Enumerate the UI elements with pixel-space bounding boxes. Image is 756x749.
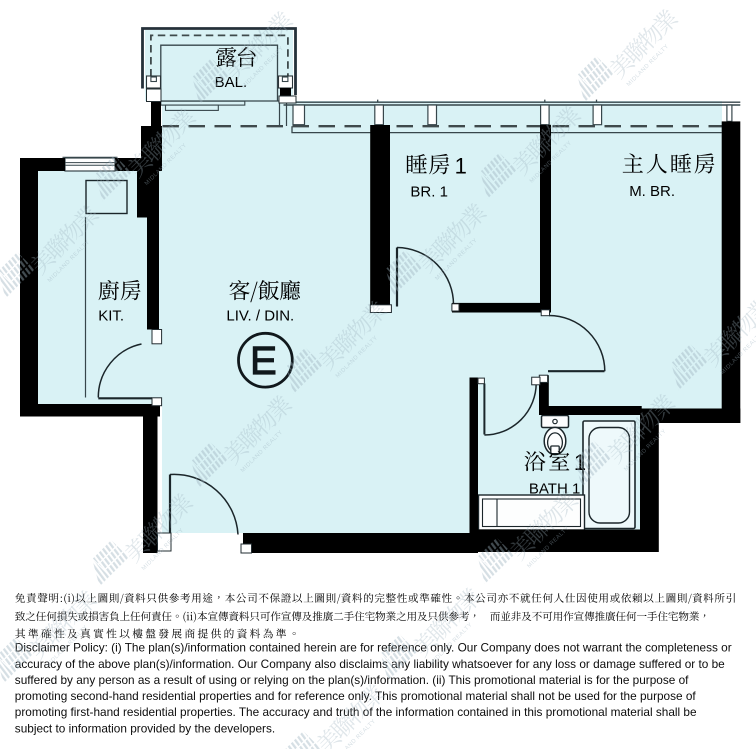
svg-text:M. BR.: M. BR. [629,183,675,200]
svg-text:Disclaimer Policy: (i) The pla: Disclaimer Policy: (i) The plan(s)/infor… [15,641,732,655]
svg-text:promoting second-hand resident: promoting second-hand residential proper… [15,689,697,703]
svg-text:suffered by any person as a re: suffered by any person as a result of us… [15,673,689,687]
svg-text:accuracy of the above plan(s)/: accuracy of the above plan(s)/informatio… [15,657,725,671]
svg-text:KIT.: KIT. [98,307,124,324]
svg-text:BATH 1: BATH 1 [529,481,580,498]
svg-text:subject to information provide: subject to information provided by the d… [15,721,275,735]
svg-text:1: 1 [455,153,467,178]
svg-text:LIV. / DIN.: LIV. / DIN. [226,307,294,324]
svg-text:BR. 1: BR. 1 [410,183,448,200]
